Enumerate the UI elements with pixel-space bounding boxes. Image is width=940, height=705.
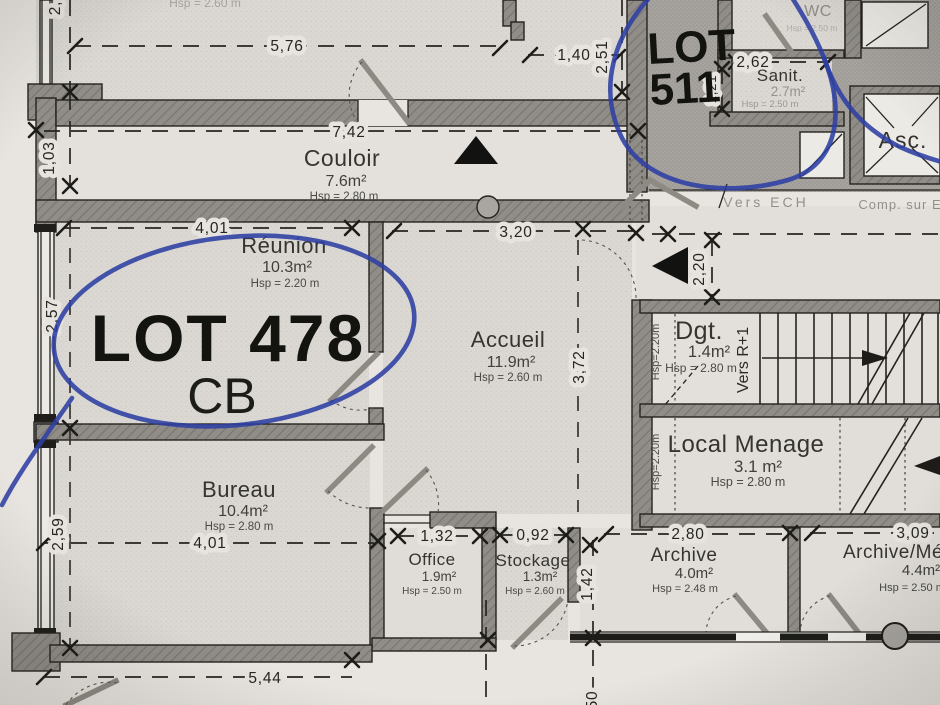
floor-plan-photo: 5,76 1,40 2,51 1,03 2, 7,42 4,01 3,20 2,…	[0, 0, 940, 705]
floor-plan-svg: 5,76 1,40 2,51 1,03 2, 7,42 4,01 3,20 2,…	[0, 0, 940, 705]
photo-vignette	[0, 0, 940, 705]
